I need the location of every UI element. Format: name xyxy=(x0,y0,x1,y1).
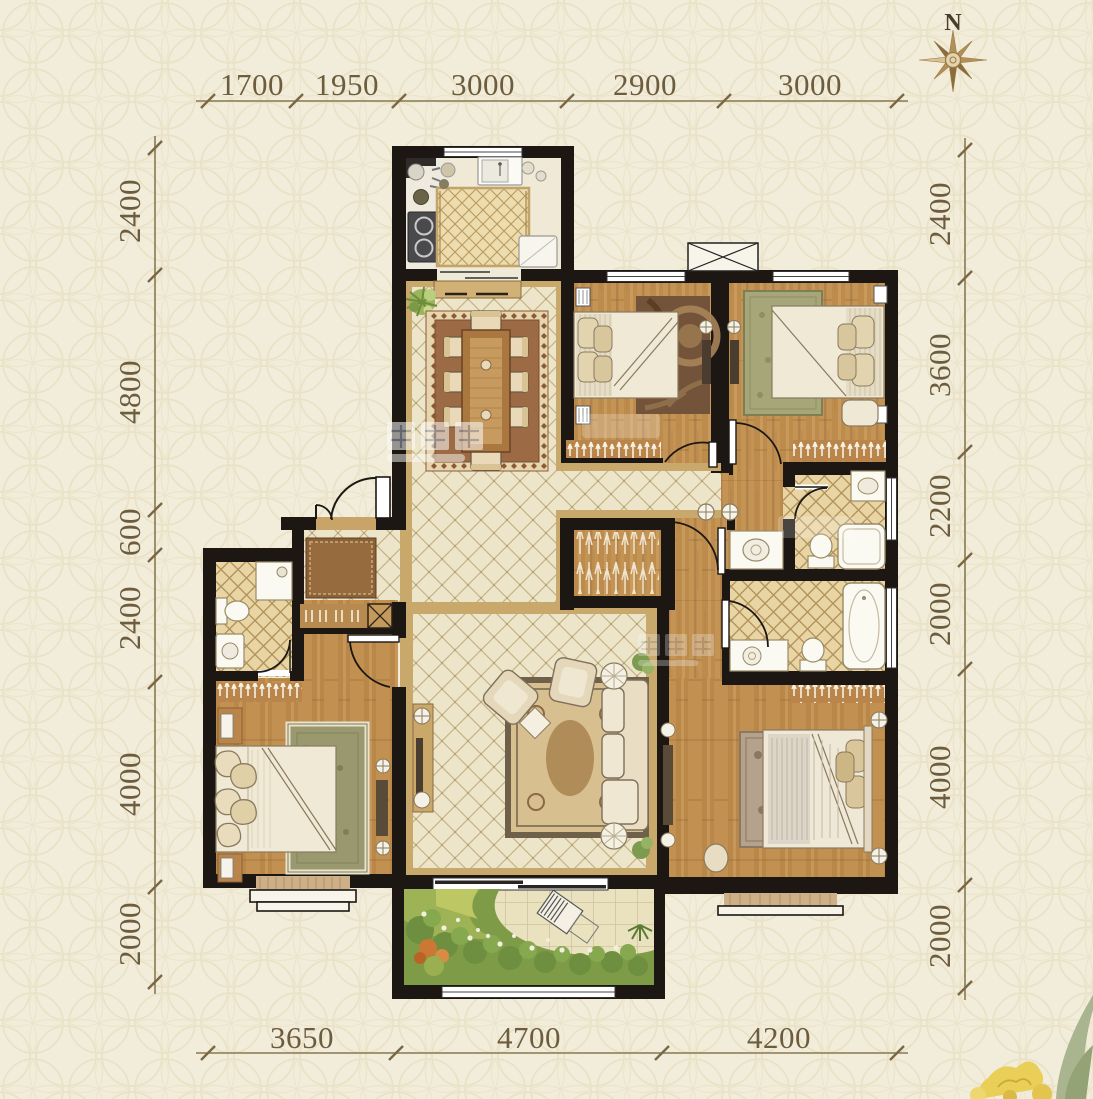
svg-text:2000: 2000 xyxy=(922,904,957,968)
svg-text:2900: 2900 xyxy=(613,67,677,102)
svg-text:2400: 2400 xyxy=(922,182,957,246)
svg-text:600: 600 xyxy=(112,508,147,556)
svg-text:1700: 1700 xyxy=(220,67,284,102)
svg-text:1950: 1950 xyxy=(315,67,379,102)
svg-text:3000: 3000 xyxy=(451,67,515,102)
svg-text:2400: 2400 xyxy=(112,179,147,243)
svg-text:3000: 3000 xyxy=(778,67,842,102)
svg-text:3600: 3600 xyxy=(922,333,957,397)
svg-text:4800: 4800 xyxy=(112,360,147,424)
svg-text:2000: 2000 xyxy=(922,582,957,646)
svg-text:3650: 3650 xyxy=(270,1020,334,1055)
svg-text:4700: 4700 xyxy=(497,1020,561,1055)
svg-text:2200: 2200 xyxy=(922,474,957,538)
svg-text:2400: 2400 xyxy=(112,586,147,650)
svg-text:4000: 4000 xyxy=(922,745,957,809)
svg-text:4000: 4000 xyxy=(112,752,147,816)
svg-text:4200: 4200 xyxy=(747,1020,811,1055)
svg-text:2000: 2000 xyxy=(112,902,147,966)
